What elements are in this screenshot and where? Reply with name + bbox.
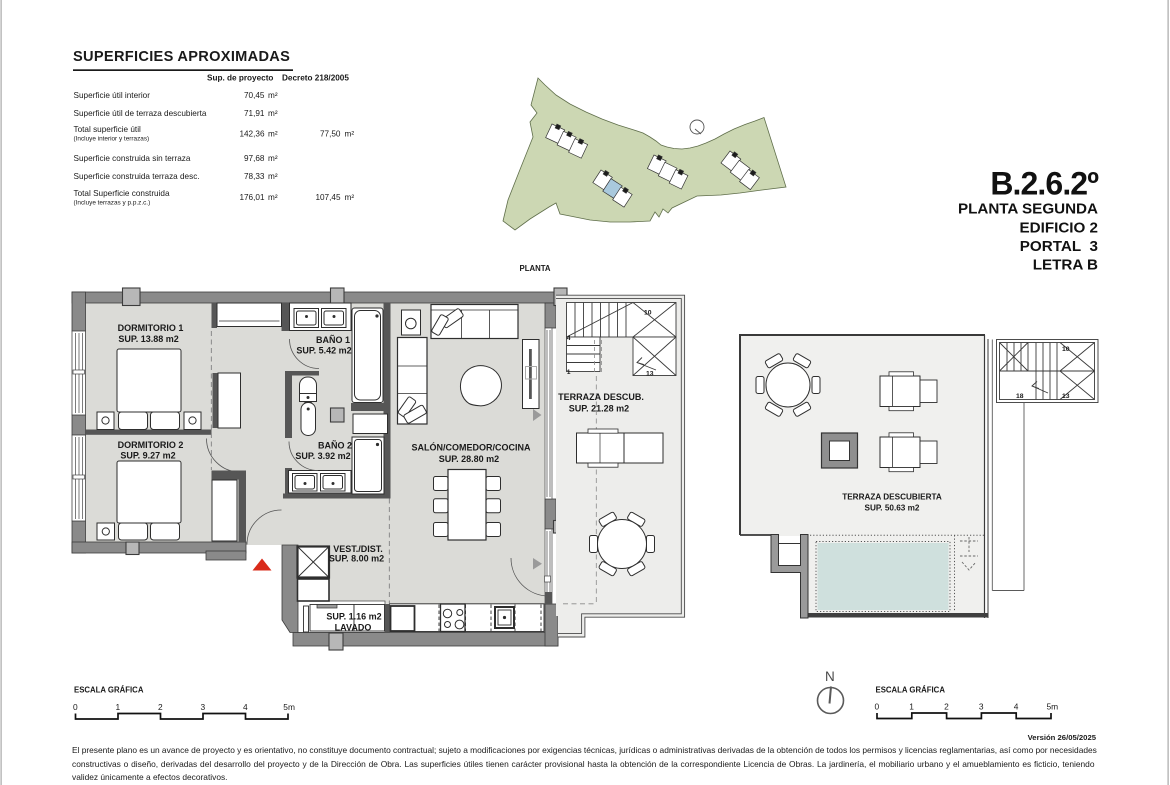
svg-text:ESCALA GRÁFICA: ESCALA GRÁFICA — [876, 686, 946, 695]
svg-text:70,45: 70,45 — [244, 91, 265, 100]
svg-text:97,68: 97,68 — [244, 154, 265, 163]
svg-text:LAVADO: LAVADO — [335, 623, 372, 633]
svg-text:SUP. 5.42 m2: SUP. 5.42 m2 — [296, 346, 351, 356]
svg-text:m²: m² — [268, 193, 278, 202]
svg-text:SUP. 8.00 m2: SUP. 8.00 m2 — [329, 554, 384, 564]
svg-text:(Incluye terrazas y p.p.z.c.): (Incluye terrazas y p.p.z.c.) — [74, 200, 151, 207]
svg-text:1: 1 — [909, 702, 914, 712]
svg-text:18: 18 — [1016, 393, 1024, 400]
svg-text:4: 4 — [567, 335, 571, 342]
svg-text:(Incluye interior y terrazas): (Incluye interior y terrazas) — [74, 136, 150, 143]
svg-text:m²: m² — [345, 130, 355, 139]
svg-text:0: 0 — [73, 702, 78, 712]
svg-text:71,91: 71,91 — [244, 109, 265, 118]
svg-text:SUP. 13.88 m2: SUP. 13.88 m2 — [118, 334, 178, 344]
svg-text:3: 3 — [979, 702, 984, 712]
svg-text:Sup. de proyecto: Sup. de proyecto — [207, 74, 273, 83]
svg-text:SUP. 1.16 m2: SUP. 1.16 m2 — [326, 612, 381, 622]
svg-text:176,01: 176,01 — [239, 193, 264, 202]
svg-text:Superficie construida terraza: Superficie construida terraza desc. — [74, 172, 200, 181]
svg-text:3: 3 — [201, 702, 206, 712]
svg-text:SUPERFICIES APROXIMADAS: SUPERFICIES APROXIMADAS — [73, 49, 290, 65]
svg-text:PLANTA SEGUNDA: PLANTA SEGUNDA — [958, 201, 1098, 218]
svg-text:DORMITORIO 1: DORMITORIO 1 — [118, 323, 184, 333]
svg-text:m²: m² — [268, 130, 278, 139]
svg-text:m²: m² — [345, 193, 355, 202]
svg-text:VEST./DIST.: VEST./DIST. — [333, 544, 383, 554]
svg-text:BAÑO 1: BAÑO 1 — [316, 335, 350, 345]
svg-text:2: 2 — [944, 702, 949, 712]
svg-text:PORTAL 3: PORTAL 3 — [1020, 238, 1098, 255]
svg-text:TERRAZA DESCUB.: TERRAZA DESCUB. — [558, 392, 644, 402]
svg-text:ESCALA GRÁFICA: ESCALA GRÁFICA — [74, 686, 144, 695]
svg-text:m²: m² — [268, 154, 278, 163]
svg-text:13: 13 — [1062, 393, 1070, 400]
svg-text:SUP. 50.63 m2: SUP. 50.63 m2 — [865, 504, 920, 513]
svg-text:SUP. 3.92 m2: SUP. 3.92 m2 — [295, 451, 350, 461]
svg-text:5m: 5m — [283, 702, 295, 712]
svg-text:m²: m² — [268, 91, 278, 100]
svg-text:DORMITORIO 2: DORMITORIO 2 — [118, 440, 184, 450]
svg-text:78,33: 78,33 — [244, 172, 265, 181]
svg-text:77,50: 77,50 — [320, 130, 341, 139]
svg-text:SUP. 9.27 m2: SUP. 9.27 m2 — [120, 451, 175, 461]
svg-text:SUP. 21.28 m2: SUP. 21.28 m2 — [569, 404, 629, 414]
svg-text:0: 0 — [875, 702, 880, 712]
svg-text:4: 4 — [1014, 702, 1019, 712]
svg-text:Versión 26/05/2025: Versión 26/05/2025 — [1028, 733, 1097, 742]
svg-text:PLANTA: PLANTA — [520, 264, 551, 273]
svg-text:Superficie útil de terraza des: Superficie útil de terraza descubierta — [74, 109, 207, 118]
svg-text:2: 2 — [158, 702, 163, 712]
svg-text:B.2.6.2º: B.2.6.2º — [990, 166, 1099, 202]
svg-text:Decreto 218/2005: Decreto 218/2005 — [282, 74, 349, 83]
svg-text:LETRA B: LETRA B — [1033, 257, 1098, 274]
svg-text:107,45: 107,45 — [315, 193, 340, 202]
svg-text:10: 10 — [644, 310, 652, 317]
svg-text:4: 4 — [243, 702, 248, 712]
svg-text:BAÑO 2: BAÑO 2 — [318, 441, 352, 451]
svg-text:Superficie construida sin terr: Superficie construida sin terraza — [74, 154, 191, 163]
svg-text:SUP. 28.80 m2: SUP. 28.80 m2 — [439, 454, 499, 464]
svg-text:13: 13 — [646, 371, 654, 378]
svg-text:5m: 5m — [1047, 702, 1059, 712]
svg-text:Superficie útil interior: Superficie útil interior — [74, 91, 151, 100]
svg-text:Total Superficie construida: Total Superficie construida — [74, 189, 170, 198]
svg-text:m²: m² — [268, 109, 278, 118]
svg-text:1: 1 — [116, 702, 121, 712]
svg-text:EDIFICIO 2: EDIFICIO 2 — [1020, 219, 1098, 236]
svg-text:1: 1 — [567, 369, 571, 376]
svg-text:Total superficie útil: Total superficie útil — [74, 125, 142, 134]
svg-text:142,36: 142,36 — [239, 130, 264, 139]
svg-text:N: N — [825, 669, 835, 684]
svg-text:SALÓN/COMEDOR/COCINA: SALÓN/COMEDOR/COCINA — [412, 442, 532, 453]
svg-text:10: 10 — [1062, 346, 1070, 353]
svg-text:m²: m² — [268, 172, 278, 181]
svg-text:TERRAZA DESCUBIERTA: TERRAZA DESCUBIERTA — [842, 493, 942, 502]
